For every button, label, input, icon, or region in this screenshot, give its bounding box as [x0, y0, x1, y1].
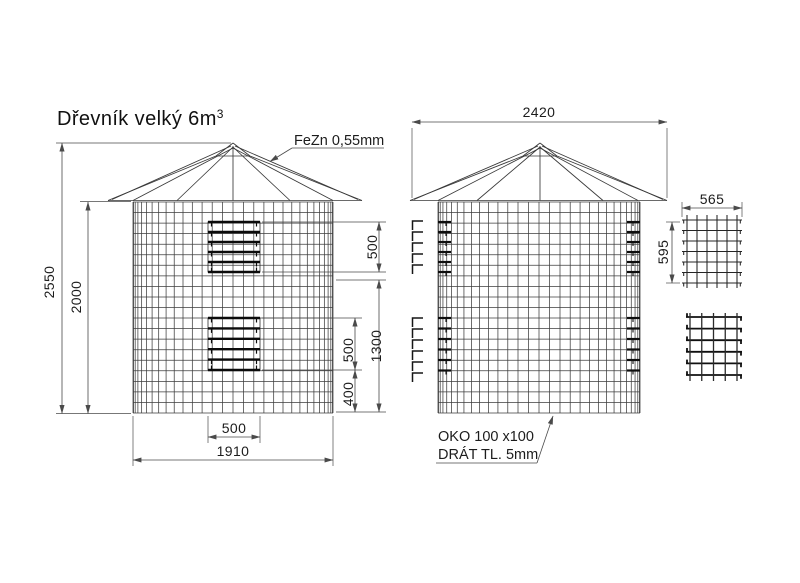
- door-hooks-top-group: [413, 221, 424, 274]
- drawing-canvas: Dřevník velký 6m3 FeZn 0,55mm OKO 100 x1…: [0, 0, 800, 583]
- dim-openings-span: 1300: [368, 330, 384, 363]
- roof-material-label: FeZn 0,55mm: [294, 133, 384, 149]
- dim-cylinder-height: 2000: [68, 281, 84, 314]
- dim-roof-width: 2420: [523, 104, 556, 120]
- mesh-panel-detail-dimensioned: [682, 215, 742, 288]
- side-view: [410, 143, 667, 413]
- front-bottom-opening: [208, 318, 260, 370]
- dim-bottom-opening-height: 500: [340, 338, 356, 363]
- dim-cylinder-width: 1910: [217, 443, 250, 459]
- title-exponent: 3: [217, 107, 224, 121]
- woodshed-technical-drawing: Dřevník velký 6m3 FeZn 0,55mm OKO 100 x1…: [0, 0, 800, 583]
- mesh-spec-label-line2: DRÁT TL. 5mm: [438, 446, 538, 463]
- dim-bottom-offset: 400: [340, 382, 356, 407]
- side-mesh-cylinder: [438, 202, 640, 413]
- front-roof: [108, 143, 362, 201]
- front-mesh-cylinder: [133, 202, 333, 413]
- dim-opening-width: 500: [222, 420, 247, 436]
- dim-panel-height: 595: [655, 240, 671, 265]
- front-view: [108, 143, 362, 413]
- page-title: Dřevník velký 6m3: [57, 107, 224, 130]
- leader-lines: [270, 148, 553, 463]
- dim-total-height: 2550: [41, 266, 57, 299]
- front-top-opening: [208, 222, 260, 272]
- dim-panel-width: 565: [700, 191, 725, 207]
- dim-top-opening-height: 500: [364, 235, 380, 260]
- mesh-panel-detail-wires: [686, 313, 742, 381]
- mesh-spec-label-line1: OKO 100 x100: [438, 429, 534, 445]
- door-hooks-bottom-group: [413, 318, 424, 382]
- side-roof: [410, 143, 667, 201]
